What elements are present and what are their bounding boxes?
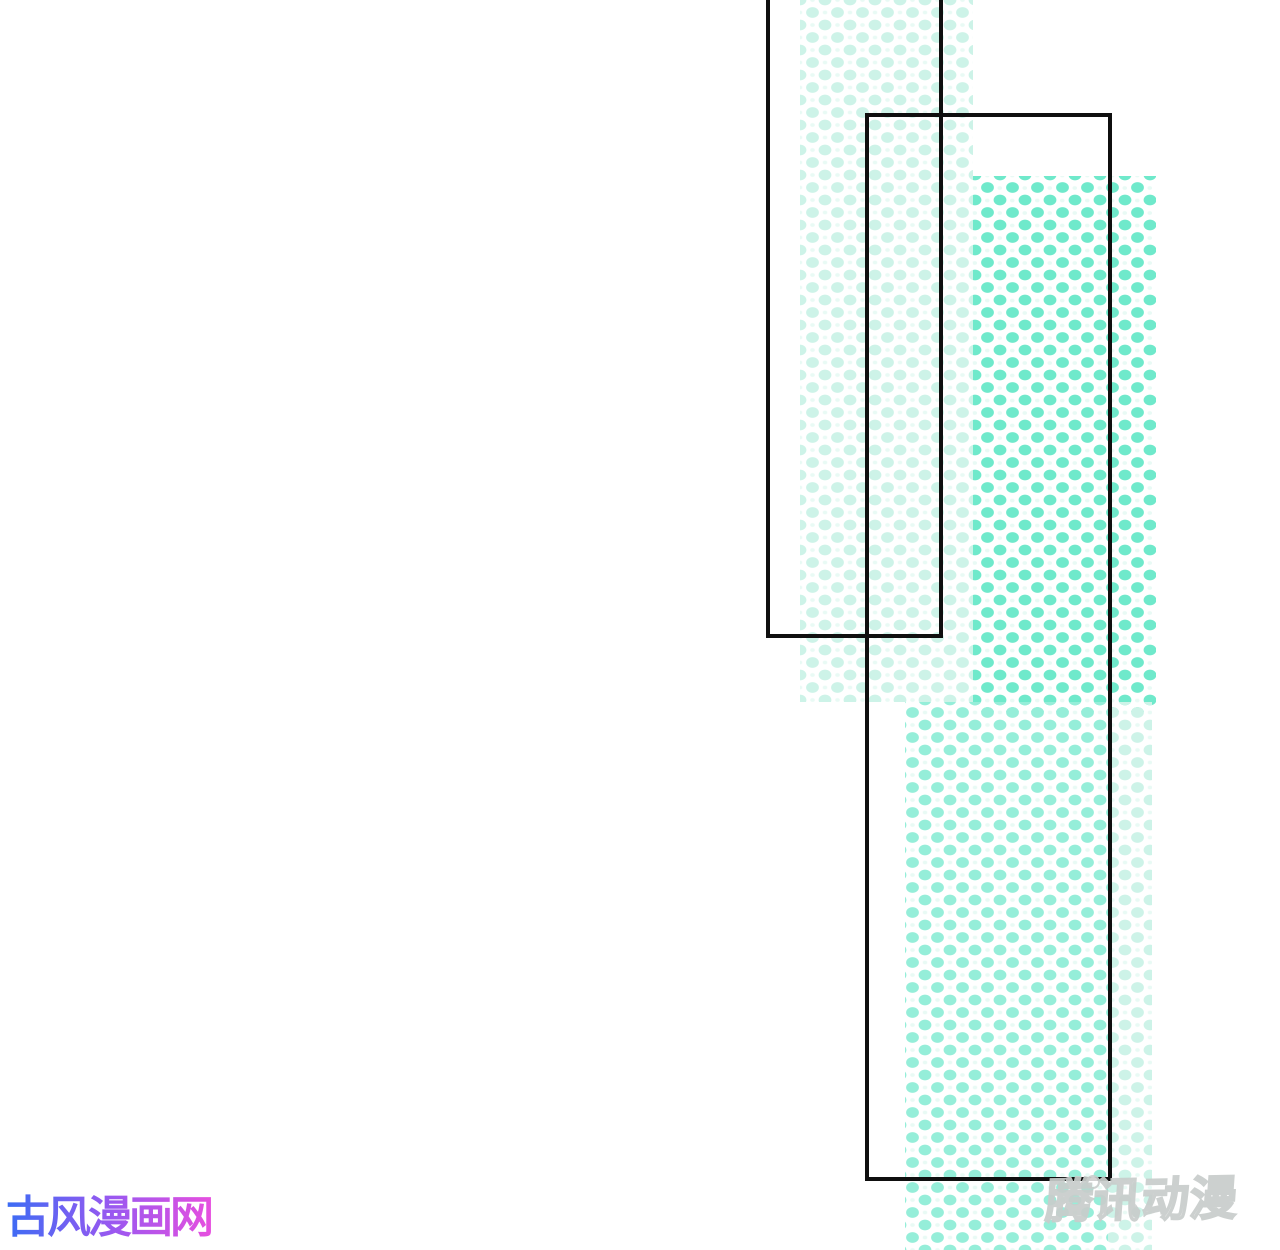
site-watermark-logo: 古风漫画网 [6, 1194, 211, 1242]
platform-watermark-logo: 腾讯动漫 [1044, 1172, 1240, 1227]
comic-page: 古风漫画网 腾讯动漫 [0, 0, 1280, 1250]
panel-frame-main [865, 113, 1112, 1181]
halftone-screen-light-bottom-right [1108, 702, 1152, 1250]
